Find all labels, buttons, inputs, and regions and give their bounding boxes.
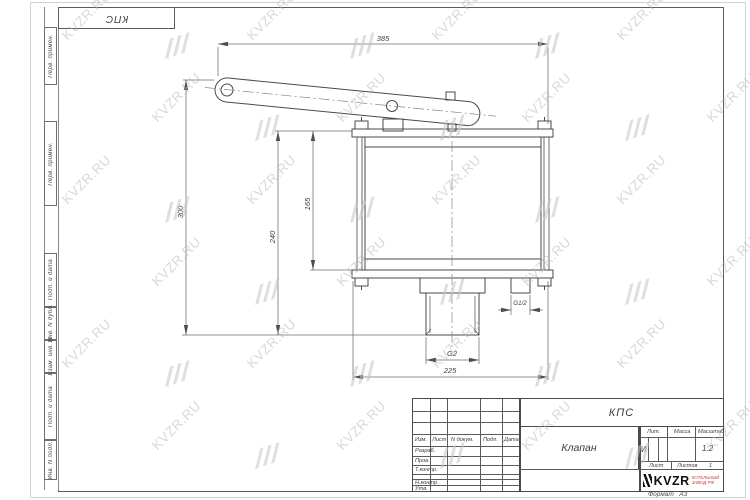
drawing-sheet: Перв. примен. Перв. примен. Подп. и дата… bbox=[0, 0, 750, 500]
company-name: КОТЕЛЬНЫЙ ЗАВОД РФ bbox=[692, 476, 720, 485]
tb-logo-cell: KVZR КОТЕЛЬНЫЙ ЗАВОД РФ bbox=[639, 469, 723, 491]
centerlines bbox=[205, 88, 496, 349]
dim-flange-width: 225 bbox=[443, 366, 457, 375]
dim-total-height: 300 bbox=[176, 205, 185, 218]
dim-total-width: 385 bbox=[377, 34, 390, 43]
tb-mass-label: Масса bbox=[674, 429, 691, 435]
tb-row-tkontr: Т.контр. bbox=[415, 467, 438, 473]
format-value: А3 bbox=[679, 491, 687, 498]
dim-outlet-thread: G2 bbox=[447, 349, 458, 358]
tb-row-utv: Утв. bbox=[415, 486, 428, 492]
lever-assembly bbox=[214, 77, 481, 131]
dim-side-port-thread: G1/2 bbox=[513, 300, 527, 307]
tb-col-data: Дата bbox=[504, 437, 519, 443]
dimension-labels: 385 300 240 165 G2 225 G1/2 bbox=[176, 34, 527, 375]
tb-col-dokum: N докум. bbox=[451, 437, 474, 443]
tb-col-podp: Подп. bbox=[483, 437, 498, 443]
tb-sheets-label: Листов bbox=[677, 463, 697, 469]
tb-lit-label: Лит. bbox=[647, 429, 660, 435]
tb-sheet-label: Лист bbox=[649, 463, 663, 469]
tb-part-name: Клапан bbox=[519, 427, 639, 470]
tb-sheets-value: 1 bbox=[709, 463, 712, 469]
tb-scale-value: 1:2 bbox=[702, 444, 713, 453]
dim-flange-height: 165 bbox=[303, 197, 312, 210]
kvzr-logo-icon bbox=[643, 474, 652, 487]
tb-row-prov: Пров. bbox=[415, 458, 430, 464]
format-note: Формат А3 bbox=[648, 491, 687, 498]
format-label: Формат bbox=[648, 491, 674, 498]
dimension-arrows bbox=[184, 42, 548, 379]
tb-designation: КПС bbox=[519, 399, 723, 427]
tb-row-razrab: Разраб. bbox=[415, 448, 435, 454]
tb-scale-label: Масштаб bbox=[698, 429, 724, 435]
kvzr-logo-text: KVZR bbox=[654, 474, 690, 488]
tb-col-list: Лист bbox=[432, 437, 446, 443]
company-line2: ЗАВОД РФ bbox=[692, 481, 720, 486]
tb-lit-value: И bbox=[641, 445, 647, 454]
title-block: Изм. Лист N докум. Подп. Дата Разраб. Пр… bbox=[412, 398, 724, 492]
dim-body-height: 240 bbox=[268, 230, 277, 244]
tb-col-izm: Изм. bbox=[415, 437, 427, 443]
